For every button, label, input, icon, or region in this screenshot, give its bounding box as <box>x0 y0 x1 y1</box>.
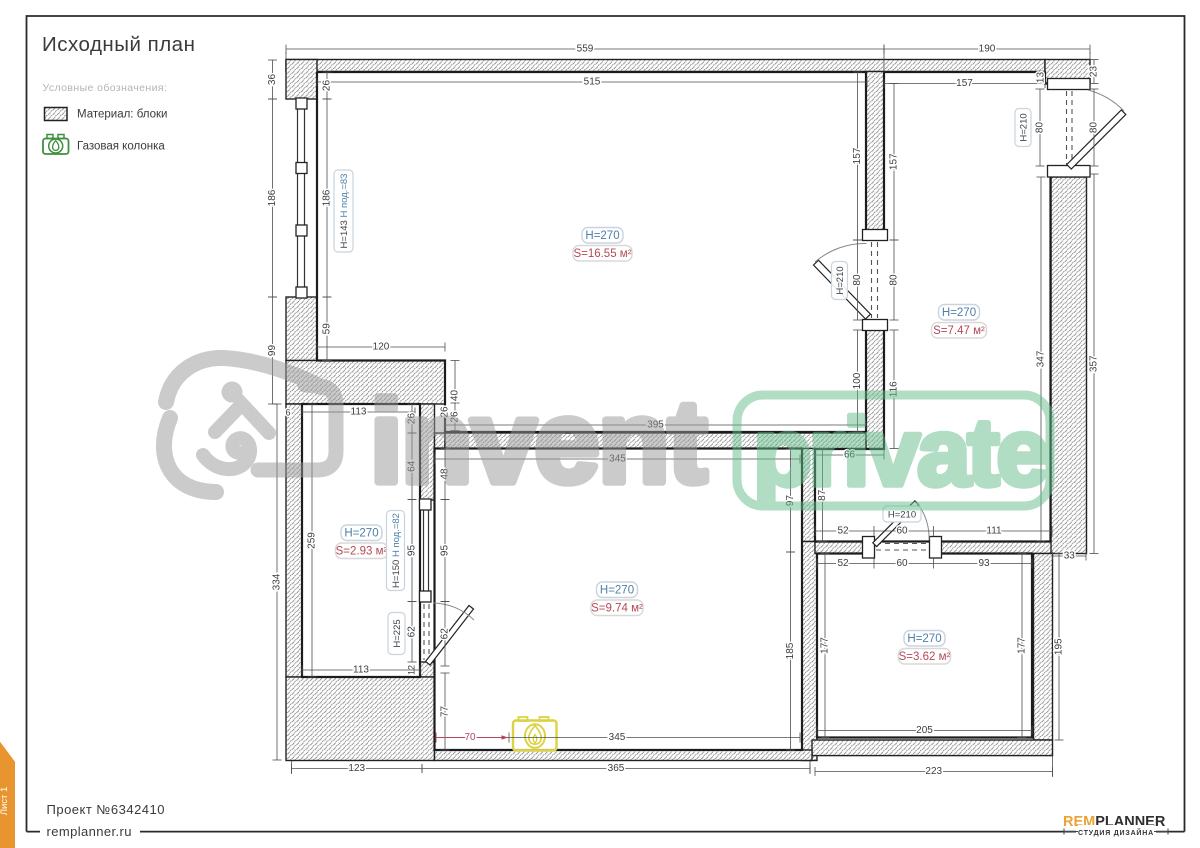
svg-text:80: 80 <box>852 274 863 286</box>
svg-text:60: 60 <box>896 526 908 537</box>
svg-text:S=3.62 м²: S=3.62 м² <box>899 651 951 663</box>
svg-text:334: 334 <box>272 573 283 590</box>
svg-text:223: 223 <box>925 766 942 777</box>
svg-text:private: private <box>753 399 1047 506</box>
svg-text:33: 33 <box>1064 551 1076 562</box>
svg-text:23: 23 <box>1089 66 1100 78</box>
svg-text:H=210: H=210 <box>888 510 916 521</box>
svg-text:177: 177 <box>1017 637 1028 654</box>
svg-text:Лист 1: Лист 1 <box>0 787 10 816</box>
svg-text:190: 190 <box>979 44 996 55</box>
svg-text:70: 70 <box>464 732 476 743</box>
svg-text:52: 52 <box>837 526 849 537</box>
svg-text:26: 26 <box>322 80 333 92</box>
svg-text:62: 62 <box>440 628 451 640</box>
svg-text:H=270: H=270 <box>907 633 941 645</box>
svg-text:195: 195 <box>1054 638 1065 655</box>
svg-text:Материал: блоки: Материал: блоки <box>77 109 167 121</box>
svg-text:95: 95 <box>440 545 451 557</box>
svg-text:186: 186 <box>267 189 278 206</box>
svg-text:123: 123 <box>348 763 365 774</box>
svg-text:357: 357 <box>1089 355 1100 372</box>
svg-text:559: 559 <box>577 44 594 55</box>
svg-text:177: 177 <box>820 637 831 654</box>
svg-text:157: 157 <box>956 78 973 89</box>
svg-text:80: 80 <box>1035 122 1046 134</box>
svg-text:H=210: H=210 <box>835 266 846 294</box>
svg-text:S=9.74 м²: S=9.74 м² <box>591 603 643 615</box>
svg-text:345: 345 <box>609 732 626 743</box>
svg-text:СТУДИЯ ДИЗАЙНА: СТУДИЯ ДИЗАЙНА <box>1078 828 1154 837</box>
svg-text:52: 52 <box>837 558 849 569</box>
svg-text:13: 13 <box>1036 72 1047 84</box>
svg-text:36: 36 <box>267 74 278 86</box>
svg-text:157: 157 <box>889 153 900 170</box>
svg-text:111: 111 <box>986 526 1002 537</box>
svg-text:S=2.93 м²: S=2.93 м² <box>336 546 388 558</box>
svg-text:Исходный план: Исходный план <box>42 33 195 56</box>
svg-text:invent: invent <box>370 376 706 507</box>
svg-text:S=7.47 м²: S=7.47 м² <box>933 325 985 337</box>
svg-text:H=143 Н под.=83: H=143 Н под.=83 <box>339 174 350 249</box>
svg-text:60: 60 <box>896 558 908 569</box>
svg-text:120: 120 <box>373 342 390 353</box>
svg-text:H=150 Н под.=82: H=150 Н под.=82 <box>391 513 402 588</box>
svg-text:H=270: H=270 <box>600 585 634 597</box>
svg-text:Условные обозначения:: Условные обозначения: <box>43 82 168 94</box>
svg-text:S=16.55 м²: S=16.55 м² <box>573 248 631 260</box>
svg-text:185: 185 <box>785 642 796 659</box>
svg-text:6: 6 <box>285 407 290 417</box>
svg-text:113: 113 <box>351 407 367 418</box>
svg-text:186: 186 <box>322 189 333 206</box>
svg-text:80: 80 <box>1089 122 1100 134</box>
svg-text:H=225: H=225 <box>392 619 403 647</box>
svg-text:515: 515 <box>584 77 601 88</box>
svg-text:347: 347 <box>1036 350 1047 367</box>
svg-text:H=270: H=270 <box>942 307 976 319</box>
svg-text:59: 59 <box>322 323 333 335</box>
svg-text:205: 205 <box>916 725 933 736</box>
svg-text:365: 365 <box>608 763 625 774</box>
svg-text:remplanner.ru: remplanner.ru <box>47 824 132 839</box>
svg-text:H=270: H=270 <box>344 528 378 540</box>
svg-text:100: 100 <box>852 372 863 389</box>
svg-text:77: 77 <box>440 706 451 718</box>
svg-text:62: 62 <box>407 626 418 638</box>
svg-text:H=210: H=210 <box>1018 113 1029 141</box>
svg-text:99: 99 <box>267 345 278 357</box>
svg-text:93: 93 <box>978 558 990 569</box>
svg-text:95: 95 <box>407 545 418 557</box>
svg-text:H=270: H=270 <box>585 230 619 242</box>
svg-text:259: 259 <box>307 532 318 549</box>
svg-text:Проект №6342410: Проект №6342410 <box>47 802 166 817</box>
svg-text:80: 80 <box>889 274 900 286</box>
svg-text:Газовая колонка: Газовая колонка <box>77 141 165 153</box>
svg-text:113: 113 <box>353 665 369 676</box>
svg-text:157: 157 <box>852 147 863 164</box>
